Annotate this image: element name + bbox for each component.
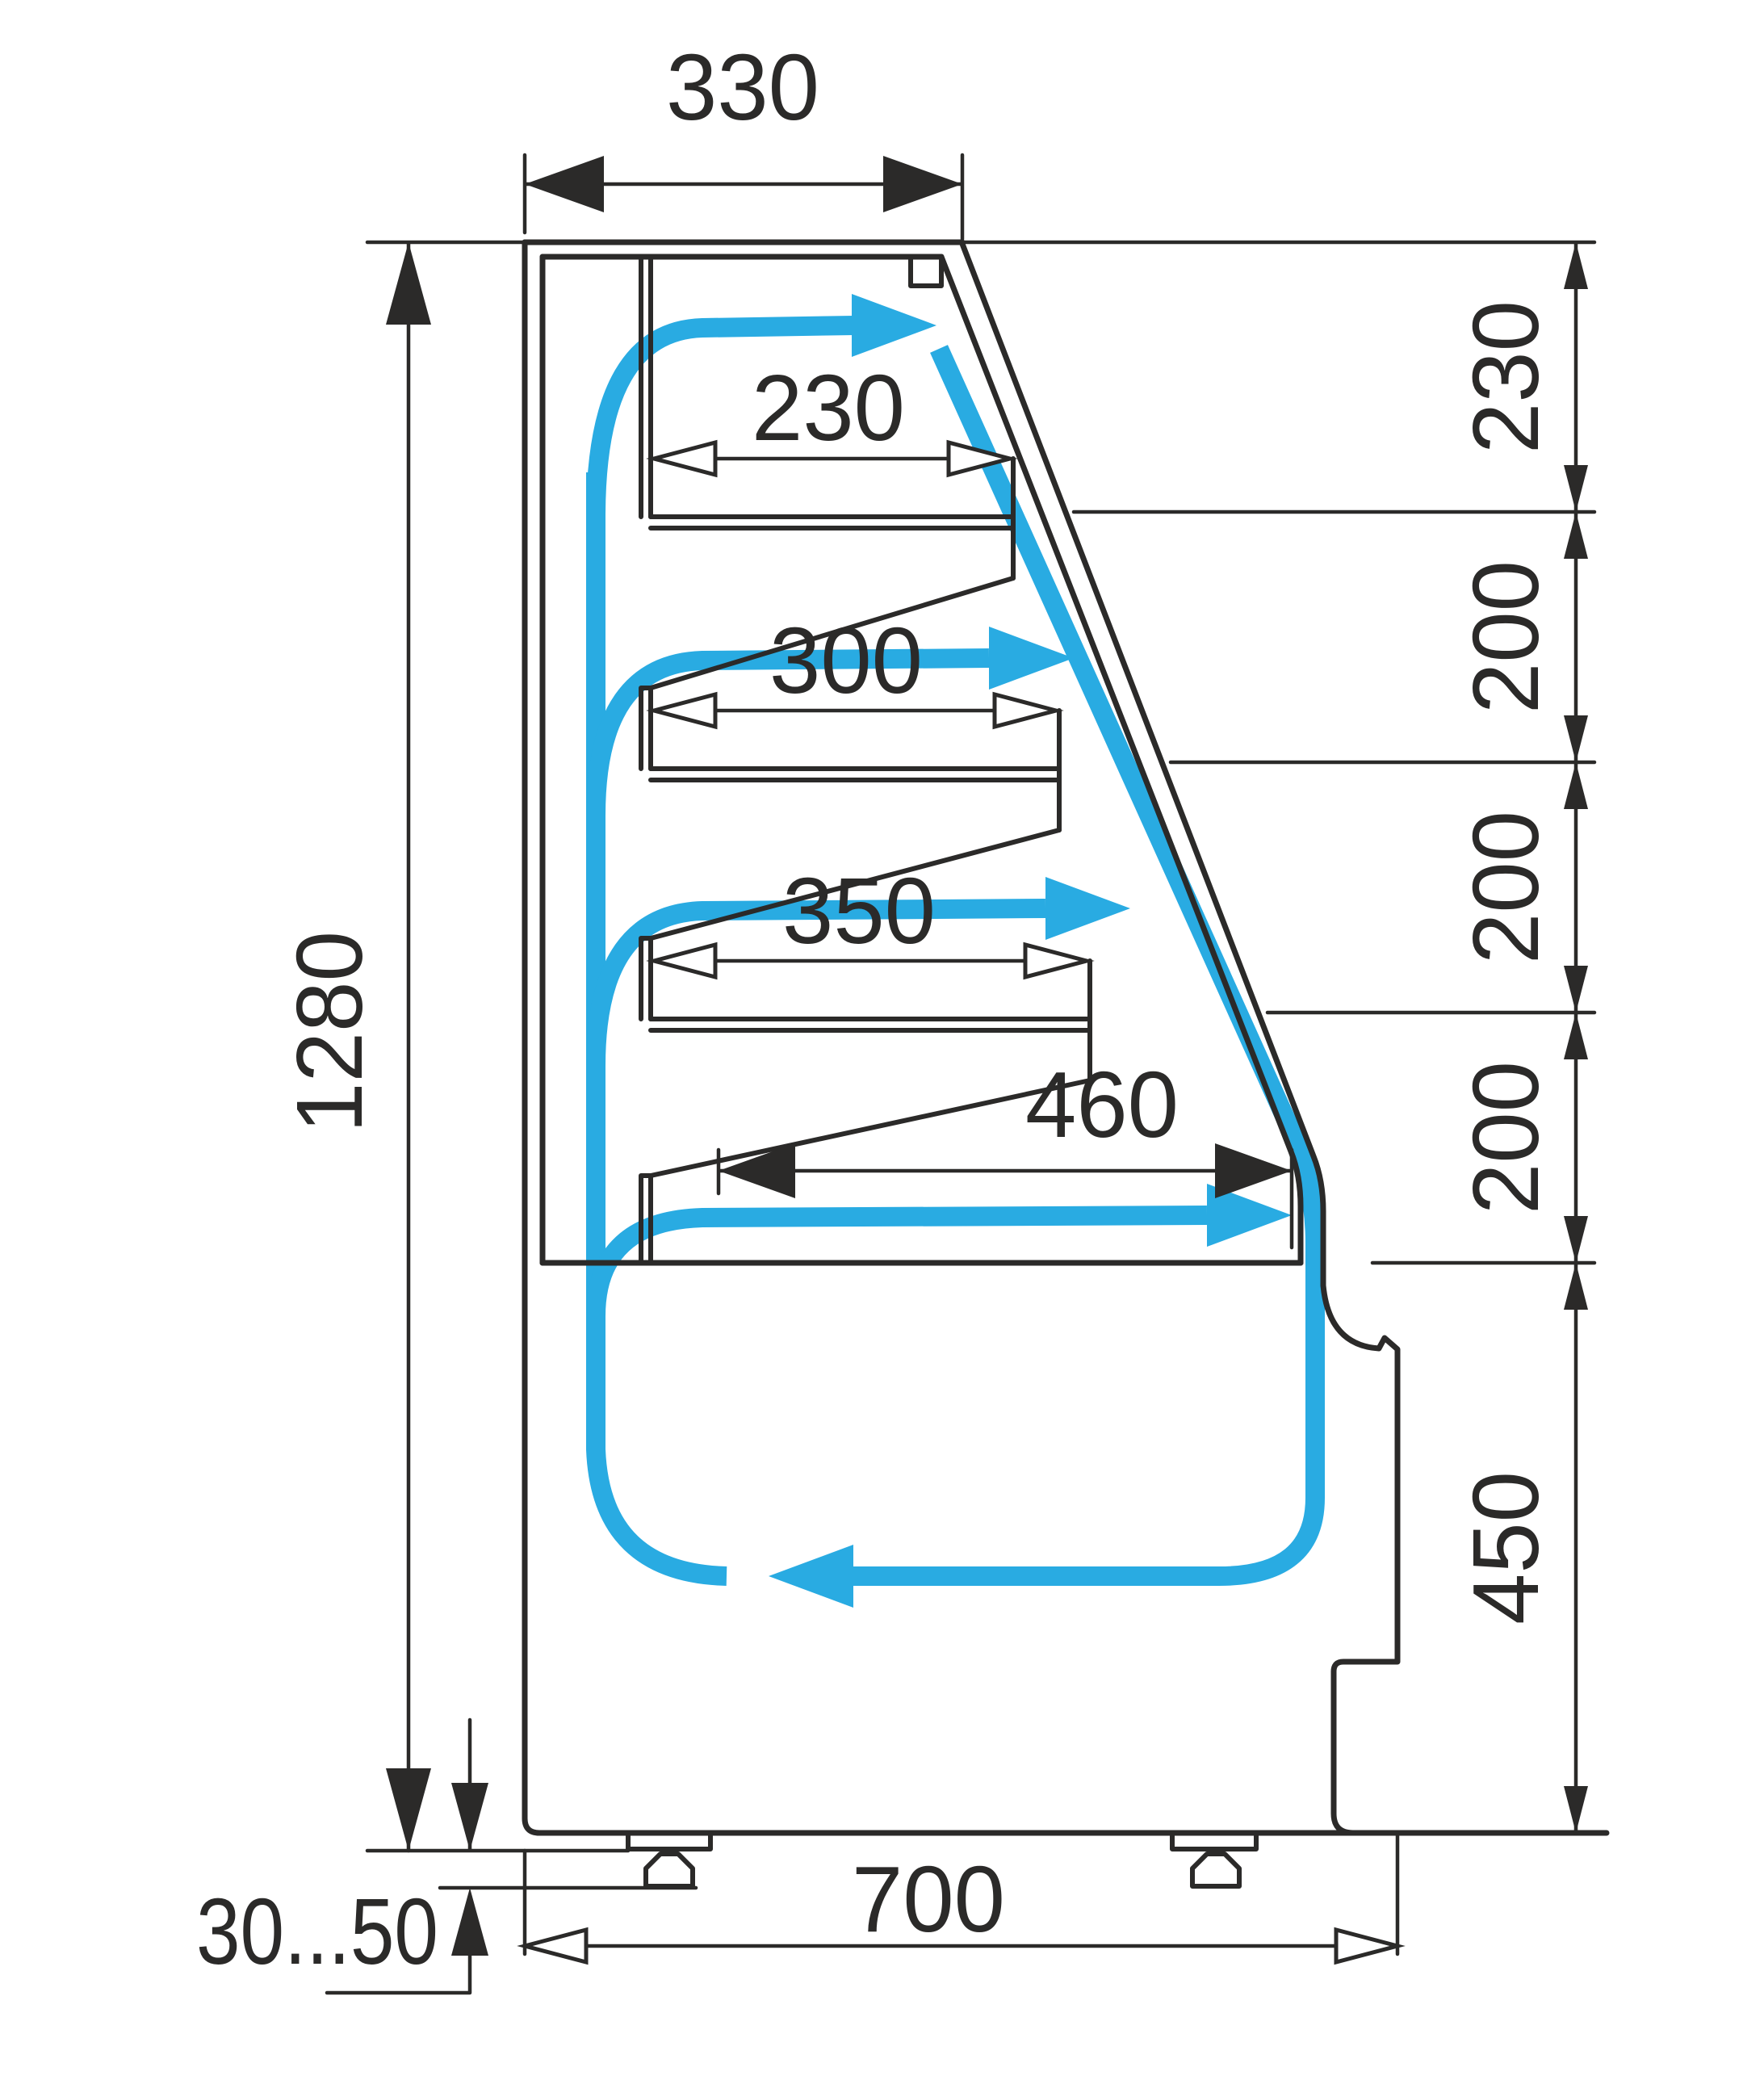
canopy-lamp-bracket [911, 257, 941, 286]
dimension-overall-depth: 700 [525, 1835, 1397, 1962]
label-base-height: 450 [1453, 1471, 1558, 1625]
dim-open-arrow-icon [1336, 1930, 1397, 1962]
label-deck-depth: 460 [1025, 1052, 1179, 1157]
dimension-height-chain: 230 200 200 200 450 [962, 242, 1594, 1833]
dimension-top-depth: 330 [525, 35, 962, 239]
label-overall-depth: 700 [852, 1847, 1005, 1952]
shelf3-board [651, 1019, 1090, 1030]
back-wall-and-bottom [525, 242, 1607, 1833]
dim-arrow-icon [883, 156, 962, 212]
label-section-4: 200 [1453, 1061, 1558, 1214]
brace-deck [651, 1080, 1090, 1176]
shelf1-board [651, 517, 1013, 528]
display-case-section-drawing: 330 230 300 350 460 1280 [0, 0, 1764, 2080]
label-section-3: 200 [1453, 811, 1558, 964]
label-overall-height: 1280 [277, 931, 382, 1133]
label-top-depth: 330 [666, 35, 819, 140]
duct-panel-seg3 [641, 938, 651, 1019]
dim-arrow-icon [525, 156, 604, 212]
dim-open-arrow-icon [654, 945, 715, 977]
dimension-leg-adjustment: 30...50 [196, 1720, 696, 1993]
right-adjustable-foot [1192, 1854, 1239, 1886]
airflow-shelf3-arrowhead-icon [1045, 877, 1130, 940]
dim-open-arrow-icon [654, 694, 715, 727]
dim-arrow-icon [386, 1768, 431, 1851]
airflow-return-arrowhead-icon [769, 1545, 853, 1608]
dim-arrow-icon [451, 1783, 488, 1851]
dim-open-arrow-icon [995, 694, 1056, 727]
bumper-and-compartment-profile [1323, 1285, 1397, 1833]
dim-arrow-icon [1215, 1143, 1292, 1198]
dim-open-arrow-icon [525, 1930, 586, 1962]
shelf2-board [651, 769, 1059, 780]
airflow-riser-curve [596, 472, 727, 1576]
duct-panel-seg1 [641, 257, 651, 517]
dim-open-arrow-icon [654, 442, 715, 475]
airflow-shelf1-arrowhead-icon [852, 294, 936, 357]
label-section-2: 200 [1453, 560, 1558, 714]
label-shelf2-depth: 300 [769, 608, 923, 713]
drawing-canvas: 330 230 300 350 460 1280 [0, 0, 1764, 2080]
dim-arrow-icon [386, 242, 431, 325]
label-leg-adjustment: 30...50 [196, 1879, 438, 1984]
dim-arrow-icon [451, 1888, 488, 1956]
label-shelf1-depth: 230 [752, 355, 905, 460]
dimension-overall-height: 1280 [277, 242, 525, 1851]
left-adjustable-foot [646, 1854, 693, 1886]
duct-panel-seg2 [641, 688, 651, 769]
label-shelf3-depth: 350 [782, 858, 936, 963]
label-section-top: 230 [1453, 300, 1558, 454]
dim-open-arrow-icon [1025, 945, 1087, 977]
